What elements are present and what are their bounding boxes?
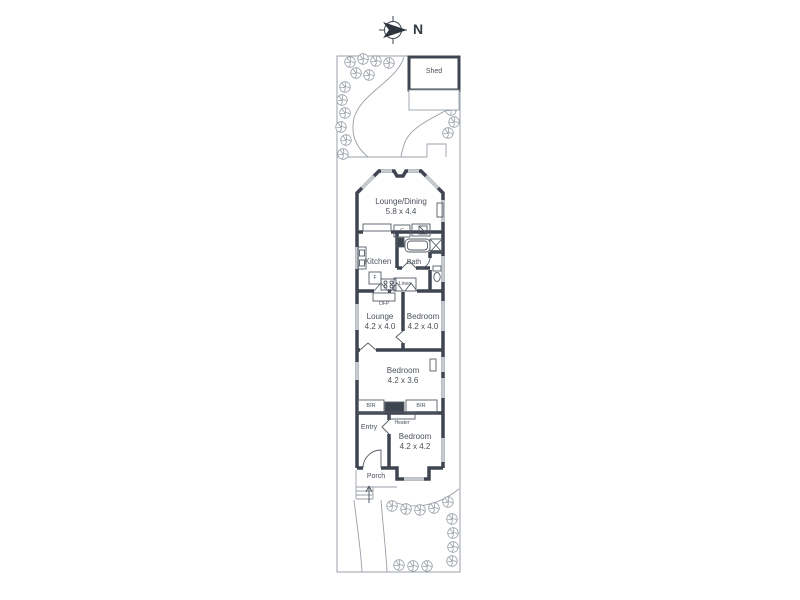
shrub-icon [371,56,382,67]
fridge-label: F [373,275,376,281]
shrub-icon [422,561,433,572]
shrub-icon [351,68,362,79]
room-label-entry: Entry [361,424,377,433]
shrub-icon [447,556,458,567]
shrub-icon [448,542,459,553]
bir-left-label: BIR [366,403,375,410]
shrub-icon [384,58,395,69]
room-name: Bedroom [387,366,419,376]
shrub-icon [358,54,369,65]
shrub-icon [340,108,351,119]
shed-label: Shed [426,68,442,77]
shrub-icon [338,149,349,160]
room-label-lounge-dining: Lounge/Dining 5.8 x 4.4 [375,197,427,217]
shrub-icon [408,561,419,572]
shrub-icon [443,128,454,139]
room-name: Bedroom [407,312,439,322]
cupboard-label: C [400,228,404,234]
room-label-kitchen: Kitchen [365,257,392,267]
room-dims: 4.2 x 4.2 [399,442,431,452]
room-dims: 4.2 x 4.0 [407,322,439,332]
shrub-icon [415,505,426,516]
linen-label: Linen [399,281,411,287]
room-label-bedroom-front: Bedroom 4.2 x 4.2 [399,432,431,452]
heater-unit [385,402,404,412]
shrub-icon [429,503,440,514]
shrub-icon [449,117,460,128]
shower-unit [397,238,404,247]
shed-outline [409,57,459,110]
shrub-icon [448,528,459,539]
shrub-icon [387,501,398,512]
shrub-icon [337,95,348,106]
room-name: Lounge/Dining [375,197,427,207]
heater-label: Heater [394,420,409,426]
bir-right-label: BIR [416,403,425,410]
room-name: Lounge [365,312,396,322]
room-label-bedroom-middle: Bedroom 4.2 x 3.6 [387,366,419,386]
room-name: Bedroom [399,432,431,442]
shrub-icon [447,514,458,525]
room-dims: 4.2 x 4.0 [365,322,396,332]
room-dims: 5.8 x 4.4 [375,207,427,217]
shrub-icon [443,497,454,508]
compass-north-label: N [413,21,423,39]
fireplace-label: OFP [379,301,389,307]
room-label-lounge: Lounge 4.2 x 4.0 [365,312,396,332]
compass-icon [379,16,407,44]
room-label-porch: Porch [367,473,385,482]
floor-plan-drawing [0,0,800,600]
room-dims: 4.2 x 3.6 [387,376,419,386]
shrub-icon [401,504,412,515]
shrub-icon [336,122,347,133]
floor-plan-page: N Shed Lounge/Dining 5.8 x 4.4 Kitchen B… [0,0,800,600]
room-label-bedroom-rear: Bedroom 4.2 x 4.0 [407,312,439,332]
shrub-icon [341,135,352,146]
room-label-bath: Bath [407,259,421,268]
shrub-icon [364,70,375,81]
shrub-icon [340,82,351,93]
shrub-icon [394,560,405,571]
shrub-icon [345,57,356,68]
